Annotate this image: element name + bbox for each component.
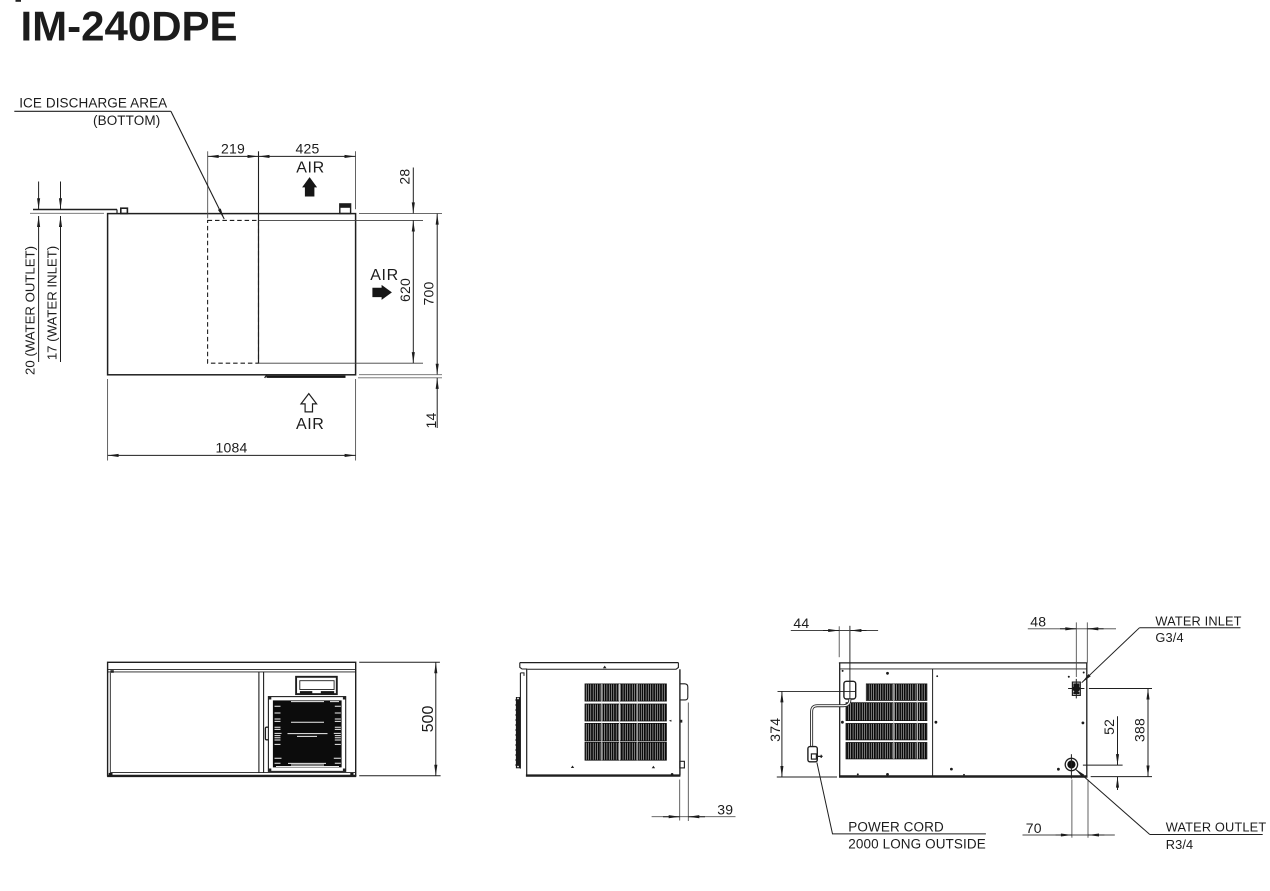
svg-text:620: 620: [397, 278, 413, 302]
svg-text:700: 700: [421, 282, 437, 306]
svg-text:52: 52: [1101, 719, 1117, 735]
svg-text:(BOTTOM): (BOTTOM): [93, 113, 160, 128]
svg-text:POWER CORD: POWER CORD: [848, 820, 944, 835]
svg-text:17 (WATER INLET): 17 (WATER INLET): [44, 246, 59, 360]
svg-text:28: 28: [396, 169, 412, 185]
svg-text:IM-240DPE: IM-240DPE: [21, 3, 238, 50]
svg-text:WATER OUTLET: WATER OUTLET: [1166, 819, 1267, 834]
svg-text:388: 388: [1132, 718, 1148, 742]
svg-text:AIR: AIR: [296, 416, 324, 433]
svg-text:1084: 1084: [216, 439, 248, 455]
svg-text:20 (WATER OUTLET): 20 (WATER OUTLET): [22, 246, 37, 375]
svg-text:70: 70: [1026, 820, 1042, 836]
svg-text:2000 LONG OUTSIDE: 2000 LONG OUTSIDE: [848, 836, 986, 851]
svg-text:500: 500: [420, 706, 437, 733]
svg-text:AIR: AIR: [296, 160, 324, 177]
svg-text:44: 44: [793, 615, 809, 631]
svg-text:WATER INLET: WATER INLET: [1155, 614, 1241, 629]
svg-text:425: 425: [296, 141, 320, 157]
svg-text:AIR: AIR: [370, 267, 398, 284]
svg-text:14: 14: [423, 413, 439, 429]
svg-text:ICE DISCHARGE AREA: ICE DISCHARGE AREA: [19, 96, 167, 111]
svg-text:R3/4: R3/4: [1166, 837, 1194, 852]
svg-text:219: 219: [221, 141, 245, 157]
svg-text:G3/4: G3/4: [1155, 630, 1183, 645]
svg-text:48: 48: [1030, 613, 1046, 629]
svg-text:374: 374: [767, 718, 783, 742]
svg-text:39: 39: [717, 801, 733, 817]
